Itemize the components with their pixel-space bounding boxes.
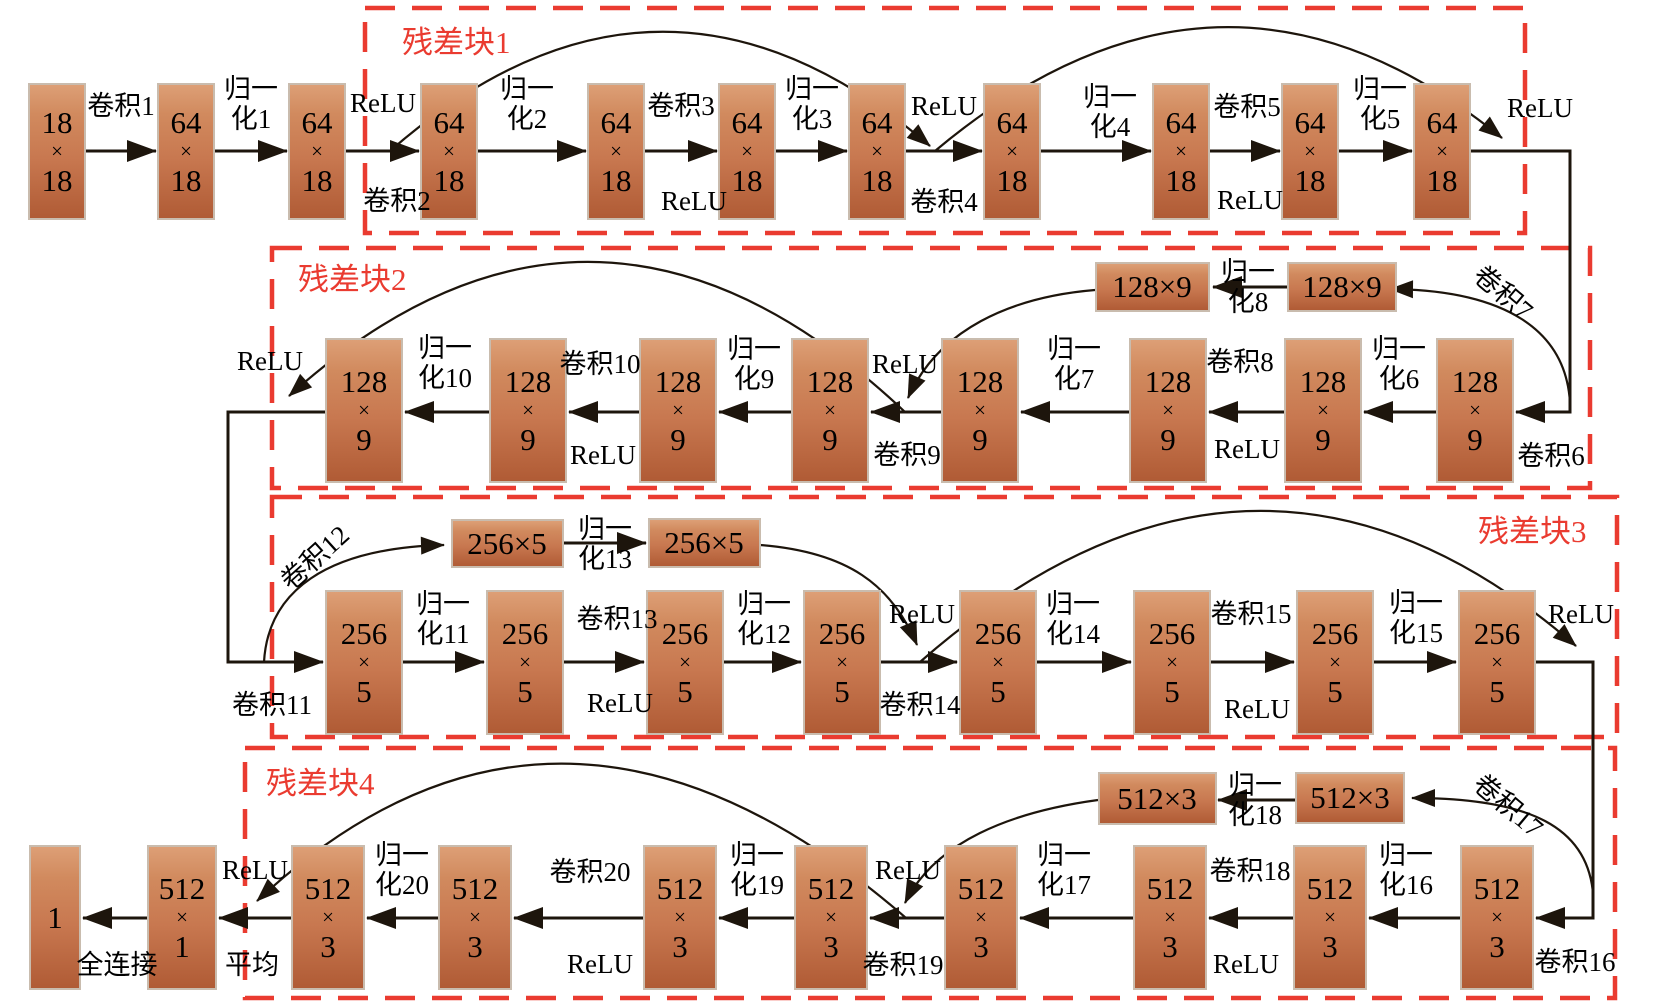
block-dimension-text: 18	[42, 106, 73, 139]
residual-block-2-label: 残差块2	[298, 264, 407, 295]
label-line: 化20	[375, 870, 429, 900]
label-line: 归一	[1037, 840, 1091, 870]
block-dimension-text: ×	[51, 139, 63, 163]
relu-label: ReLU	[1548, 599, 1614, 629]
block-dimension-text: 3	[320, 930, 336, 963]
feature-map-block: 128×9	[639, 338, 717, 483]
label-line: 化5	[1353, 104, 1407, 134]
relu-label: ReLU	[911, 91, 977, 121]
block-dimension-text: 18	[732, 164, 763, 197]
batchnorm-label: 归一化1	[224, 74, 278, 134]
label-line: ReLU	[1217, 185, 1283, 215]
label-line: 归一	[1228, 770, 1282, 800]
label-line: 归一	[1046, 589, 1100, 619]
block-dimension-text: 512	[452, 872, 499, 905]
block-dimension-text: 3	[973, 930, 989, 963]
block-dimension-text: 5	[517, 675, 533, 708]
relu-label: ReLU	[1214, 434, 1280, 464]
label-line: 卷积18	[1210, 856, 1291, 886]
feature-map-block: 64×18	[587, 83, 645, 220]
block-dimension-text: 512	[1474, 872, 1521, 905]
block-dimension-text: 64	[997, 106, 1028, 139]
block-dimension-text: ×	[311, 139, 323, 163]
label-line: 归一	[1372, 334, 1426, 364]
label-line: 归一	[578, 514, 632, 544]
label-line: ReLU	[1214, 434, 1280, 464]
label-line: 化12	[737, 619, 791, 649]
block-dimension-text: 128×9	[1112, 270, 1191, 303]
batchnorm-label: 归一化10	[418, 333, 472, 393]
feature-map-block: 512×1	[147, 845, 217, 990]
feature-map-block: 256×5	[1133, 590, 1211, 735]
batchnorm-label: 归一化11	[416, 589, 470, 649]
block-dimension-text: 18	[1166, 164, 1197, 197]
block-dimension-text: 256	[1474, 617, 1521, 650]
relu-label: ReLU	[872, 349, 938, 379]
block-dimension-text: 512	[958, 872, 1005, 905]
batchnorm-label: 归一化14	[1046, 589, 1100, 649]
residual-block-3-label: 残差块3	[1478, 516, 1587, 547]
feature-map-block: 128×9	[791, 338, 869, 483]
block-dimension-text: 64	[1295, 106, 1326, 139]
feature-map-block: 256×5	[646, 590, 724, 735]
label-line: 化19	[730, 870, 784, 900]
conv-label: 卷积10	[560, 349, 641, 379]
block-dimension-text: ×	[1175, 139, 1187, 163]
block-dimension-text: 18	[434, 164, 465, 197]
feature-map-block: 512×3	[291, 845, 365, 990]
conv-label: 卷积4	[910, 187, 978, 217]
block-dimension-text: 3	[467, 930, 483, 963]
label-line: 卷积13	[577, 604, 658, 634]
label-line: 卷积15	[1211, 599, 1292, 629]
connector-arrow	[1536, 662, 1593, 918]
label-line: 卷积2	[363, 186, 431, 216]
block-dimension-text: 5	[1489, 675, 1505, 708]
batchnorm-label: 归一化9	[727, 334, 781, 394]
feature-map-block: 512×3	[1133, 845, 1207, 990]
feature-map-block: 512×3	[1098, 772, 1217, 825]
label-line: 化8	[1221, 287, 1275, 317]
block-dimension-text: ×	[1469, 398, 1481, 422]
label-line: ReLU	[570, 440, 636, 470]
feature-map-block: 128×9	[325, 338, 403, 483]
relu-label: ReLU	[567, 949, 633, 979]
label-line: 归一	[500, 74, 554, 104]
feature-map-block: 256×5	[325, 590, 403, 735]
conv-label: 卷积16	[1535, 947, 1616, 977]
block-dimension-text: 18	[1427, 164, 1458, 197]
block-dimension-text: 9	[1315, 423, 1331, 456]
label-line: 卷积5	[1213, 92, 1281, 122]
feature-map-block: 256×5	[451, 519, 564, 568]
label-line: 归一	[727, 334, 781, 364]
block-dimension-text: 128	[1452, 365, 1499, 398]
feature-map-block: 128×9	[1129, 338, 1207, 483]
label-line: 卷积6	[1517, 441, 1585, 471]
block-dimension-text: 18	[42, 164, 73, 197]
feature-map-block: 512×3	[438, 845, 512, 990]
label-line: 化7	[1047, 364, 1101, 394]
block-dimension-text: ×	[1436, 139, 1448, 163]
label-line: 全连接	[77, 950, 158, 980]
block-dimension-text: ×	[1491, 650, 1503, 674]
conv-label: 卷积20	[550, 857, 631, 887]
connector-arrow	[228, 412, 325, 662]
batchnorm-label: 归一化2	[500, 74, 554, 134]
block-dimension-text: ×	[1329, 650, 1341, 674]
block-dimension-text: 9	[520, 423, 536, 456]
relu-label: ReLU	[350, 88, 416, 118]
block-dimension-text: 5	[1164, 675, 1180, 708]
block-dimension-text: 9	[1467, 423, 1483, 456]
label-line: 卷积8	[1206, 347, 1274, 377]
block-dimension-text: ×	[469, 905, 481, 929]
conv-label: 卷积3	[647, 91, 715, 121]
residual-block-4-label: 残差块4	[266, 768, 375, 799]
relu-label: ReLU	[1507, 93, 1573, 123]
batchnorm-label: 归一化3	[785, 74, 839, 134]
label-line: ReLU	[587, 688, 653, 718]
relu-label: ReLU	[1217, 185, 1283, 215]
label-line: 卷积9	[873, 440, 941, 470]
avgpool-label: 平均	[225, 950, 279, 980]
block-dimension-text: ×	[519, 650, 531, 674]
block-dimension-text: 512×3	[1117, 782, 1196, 815]
label-line: ReLU	[889, 599, 955, 629]
block-dimension-text: 1	[174, 930, 190, 963]
batchnorm-label: 归一化19	[730, 840, 784, 900]
label-line: ReLU	[350, 88, 416, 118]
label-line: 化3	[785, 104, 839, 134]
batchnorm-label: 归一化8	[1221, 257, 1275, 317]
block-dimension-text: 18	[302, 164, 333, 197]
conv-label: 卷积19	[863, 950, 944, 980]
block-dimension-text: 512	[808, 872, 855, 905]
block-dimension-text: 9	[1160, 423, 1176, 456]
batchnorm-label: 归一化5	[1353, 74, 1407, 134]
label-line: 化14	[1046, 619, 1100, 649]
block-dimension-text: ×	[322, 905, 334, 929]
block-dimension-text: 128	[1300, 365, 1347, 398]
relu-label: ReLU	[1224, 694, 1290, 724]
feature-map-block: 256×5	[803, 590, 881, 735]
feature-map-block: 64×18	[288, 83, 346, 220]
block-dimension-text: 9	[670, 423, 686, 456]
block-dimension-text: 3	[1322, 930, 1338, 963]
block-dimension-text: 1	[47, 901, 63, 934]
batchnorm-label: 归一化18	[1228, 770, 1282, 830]
batchnorm-label: 归一化17	[1037, 840, 1091, 900]
label-line: 卷积16	[1535, 947, 1616, 977]
feature-map-block: 64×18	[157, 83, 215, 220]
block-dimension-text: 64	[601, 106, 632, 139]
block-dimension-text: 64	[302, 106, 333, 139]
block-dimension-text: ×	[825, 905, 837, 929]
block-dimension-text: 18	[171, 164, 202, 197]
label-line: 卷积11	[232, 690, 312, 720]
block-dimension-text: ×	[1166, 650, 1178, 674]
block-dimension-text: 18	[601, 164, 632, 197]
block-dimension-text: 128	[1145, 365, 1192, 398]
block-dimension-text: 64	[862, 106, 893, 139]
feature-map-block: 256×5	[959, 590, 1037, 735]
block-dimension-text: ×	[1317, 398, 1329, 422]
block-dimension-text: ×	[672, 398, 684, 422]
relu-label: ReLU	[875, 855, 941, 885]
label-line: ReLU	[872, 349, 938, 379]
block-dimension-text: 256	[341, 617, 388, 650]
conv-label: 卷积9	[873, 440, 941, 470]
label-line: ReLU	[222, 855, 288, 885]
block-dimension-text: 512	[657, 872, 704, 905]
block-dimension-text: 5	[834, 675, 850, 708]
label-line: 卷积20	[550, 857, 631, 887]
block-dimension-text: 5	[1327, 675, 1343, 708]
conv-label: 卷积14	[880, 690, 961, 720]
feature-map-block: 256×5	[486, 590, 564, 735]
block-dimension-text: ×	[974, 398, 986, 422]
feature-map-block: 64×18	[1152, 83, 1210, 220]
block-dimension-text: ×	[679, 650, 691, 674]
block-dimension-text: 18	[862, 164, 893, 197]
label-line: 卷积14	[880, 690, 961, 720]
label-line: 化17	[1037, 870, 1091, 900]
block-dimension-text: ×	[522, 398, 534, 422]
relu-label: ReLU	[570, 440, 636, 470]
feature-map-block: 128×9	[1436, 338, 1514, 483]
label-line: ReLU	[1213, 949, 1279, 979]
block-dimension-text: ×	[1164, 905, 1176, 929]
label-line: ReLU	[875, 855, 941, 885]
label-line: 归一	[1353, 74, 1407, 104]
feature-map-block: 512×3	[794, 845, 868, 990]
label-line: 卷积3	[647, 91, 715, 121]
label-line: 归一	[737, 589, 791, 619]
label-line: 卷积10	[560, 349, 641, 379]
batchnorm-label: 归一化6	[1372, 334, 1426, 394]
block-dimension-text: 256	[662, 617, 709, 650]
block-dimension-text: 256	[1312, 617, 1359, 650]
block-dimension-text: ×	[180, 139, 192, 163]
label-line: 归一	[1221, 257, 1275, 287]
label-line: 化13	[578, 544, 632, 574]
relu-label: ReLU	[237, 346, 303, 376]
block-dimension-text: 512	[1307, 872, 1354, 905]
conv-label: 卷积2	[363, 186, 431, 216]
label-line: 归一	[375, 840, 429, 870]
block-dimension-text: 9	[972, 423, 988, 456]
block-dimension-text: 64	[434, 106, 465, 139]
block-dimension-text: 9	[822, 423, 838, 456]
batchnorm-label: 归一化15	[1389, 588, 1443, 648]
block-dimension-text: 512	[305, 872, 352, 905]
label-line: 化10	[418, 363, 472, 393]
label-line: 卷积19	[863, 950, 944, 980]
block-dimension-text: 5	[990, 675, 1006, 708]
block-dimension-text: ×	[871, 139, 883, 163]
block-dimension-text: 128	[807, 365, 854, 398]
block-dimension-text: 256	[1149, 617, 1196, 650]
label-line: 化2	[500, 104, 554, 134]
block-dimension-text: 64	[1166, 106, 1197, 139]
conv-label: 卷积15	[1211, 599, 1292, 629]
feature-map-block: 128×9	[1284, 338, 1362, 483]
batchnorm-label: 归一化7	[1047, 334, 1101, 394]
residual-block-1-label: 残差块1	[402, 27, 511, 58]
label-line: 化1	[224, 104, 278, 134]
label-line: 化18	[1228, 800, 1282, 830]
block-dimension-text: ×	[674, 905, 686, 929]
conv-label: 卷积5	[1213, 92, 1281, 122]
label-line: 归一	[1379, 840, 1433, 870]
block-dimension-text: ×	[1162, 398, 1174, 422]
block-dimension-text: ×	[824, 398, 836, 422]
block-dimension-text: ×	[358, 650, 370, 674]
label-line: 卷积4	[910, 187, 978, 217]
block-dimension-text: 512×3	[1310, 781, 1389, 814]
feature-map-block: 64×18	[983, 83, 1041, 220]
block-dimension-text: 128×9	[1302, 270, 1381, 303]
label-line: ReLU	[911, 91, 977, 121]
label-line: 卷积1	[87, 91, 155, 121]
feature-map-block: 1	[29, 845, 81, 990]
label-line: 化11	[416, 619, 470, 649]
block-dimension-text: ×	[836, 650, 848, 674]
label-line: 化16	[1379, 870, 1433, 900]
label-line: 归一	[1083, 82, 1137, 112]
batchnorm-label: 归一化13	[578, 514, 632, 574]
block-dimension-text: 128	[957, 365, 1004, 398]
block-dimension-text: 3	[1489, 930, 1505, 963]
conv-label: 卷积6	[1517, 441, 1585, 471]
relu-label: ReLU	[1213, 949, 1279, 979]
conv-label: 卷积13	[577, 604, 658, 634]
block-dimension-text: ×	[975, 905, 987, 929]
label-line: 归一	[730, 840, 784, 870]
block-dimension-text: ×	[358, 398, 370, 422]
block-dimension-text: 3	[672, 930, 688, 963]
label-line: 归一	[785, 74, 839, 104]
feature-map-block: 256×5	[648, 518, 761, 568]
feature-map-block: 18×18	[28, 83, 86, 220]
conv-label: 卷积11	[232, 690, 312, 720]
block-dimension-text: ×	[741, 139, 753, 163]
batchnorm-label: 归一化20	[375, 840, 429, 900]
batchnorm-label: 归一化4	[1083, 82, 1137, 142]
conv-label: 卷积8	[1206, 347, 1274, 377]
feature-map-block: 512×3	[643, 845, 717, 990]
feature-map-block: 64×18	[1413, 83, 1471, 220]
label-line: ReLU	[237, 346, 303, 376]
label-line: 平均	[225, 950, 279, 980]
block-dimension-text: 64	[732, 106, 763, 139]
block-dimension-text: 18	[1295, 164, 1326, 197]
block-dimension-text: ×	[176, 905, 188, 929]
block-dimension-text: ×	[1304, 139, 1316, 163]
block-dimension-text: 256×5	[664, 526, 743, 559]
feature-map-block: 512×3	[944, 845, 1018, 990]
block-dimension-text: 64	[1427, 106, 1458, 139]
block-dimension-text: 128	[655, 365, 702, 398]
block-dimension-text: 256×5	[467, 527, 546, 560]
label-line: 化9	[727, 364, 781, 394]
relu-label: ReLU	[889, 599, 955, 629]
block-dimension-text: 5	[677, 675, 693, 708]
label-line: 归一	[418, 333, 472, 363]
block-dimension-text: ×	[610, 139, 622, 163]
label-line: ReLU	[1548, 599, 1614, 629]
label-line: 归一	[224, 74, 278, 104]
feature-map-block: 128×9	[941, 338, 1019, 483]
block-dimension-text: 5	[356, 675, 372, 708]
block-dimension-text: 256	[975, 617, 1022, 650]
block-dimension-text: ×	[1324, 905, 1336, 929]
feature-map-block: 128×9	[1095, 262, 1210, 312]
feature-map-block: 64×18	[1281, 83, 1339, 220]
label-line: 化4	[1083, 112, 1137, 142]
feature-map-block: 128×9	[489, 338, 567, 483]
block-dimension-text: 9	[356, 423, 372, 456]
batchnorm-label: 归一化16	[1379, 840, 1433, 900]
label-line: 归一	[416, 589, 470, 619]
conv-label: 卷积18	[1210, 856, 1291, 886]
relu-label: ReLU	[587, 688, 653, 718]
feature-map-block: 256×5	[1296, 590, 1374, 735]
block-dimension-text: 512	[1147, 872, 1194, 905]
block-dimension-text: 64	[171, 106, 202, 139]
fully-connected-label: 全连接	[77, 950, 158, 980]
batchnorm-label: 归一化12	[737, 589, 791, 649]
block-dimension-text: 256	[819, 617, 866, 650]
feature-map-block: 512×3	[1460, 845, 1534, 990]
label-line: ReLU	[661, 186, 727, 216]
block-dimension-text: 3	[1162, 930, 1178, 963]
feature-map-block: 512×3	[1295, 772, 1405, 824]
feature-map-block: 128×9	[1287, 262, 1397, 312]
relu-label: ReLU	[222, 855, 288, 885]
feature-map-block: 512×3	[1293, 845, 1367, 990]
feature-map-block: 256×5	[1458, 590, 1536, 735]
block-dimension-text: 128	[505, 365, 552, 398]
block-dimension-text: ×	[992, 650, 1004, 674]
label-line: 化15	[1389, 618, 1443, 648]
block-dimension-text: ×	[1006, 139, 1018, 163]
resnet-architecture-diagram: 残差块1残差块2残差块3残差块418×1864×1864×1864×1864×1…	[0, 0, 1654, 1004]
block-dimension-text: 18	[997, 164, 1028, 197]
label-line: 归一	[1389, 588, 1443, 618]
label-line: ReLU	[1224, 694, 1290, 724]
label-line: 归一	[1047, 334, 1101, 364]
block-dimension-text: 512	[159, 872, 206, 905]
label-line: 化6	[1372, 364, 1426, 394]
conv-label: 卷积1	[87, 91, 155, 121]
block-dimension-text: ×	[1491, 905, 1503, 929]
block-dimension-text: 256	[502, 617, 549, 650]
block-dimension-text: ×	[443, 139, 455, 163]
block-dimension-text: 128	[341, 365, 388, 398]
feature-map-block: 64×18	[848, 83, 906, 220]
relu-label: ReLU	[661, 186, 727, 216]
label-line: ReLU	[567, 949, 633, 979]
label-line: ReLU	[1507, 93, 1573, 123]
block-dimension-text: 3	[823, 930, 839, 963]
